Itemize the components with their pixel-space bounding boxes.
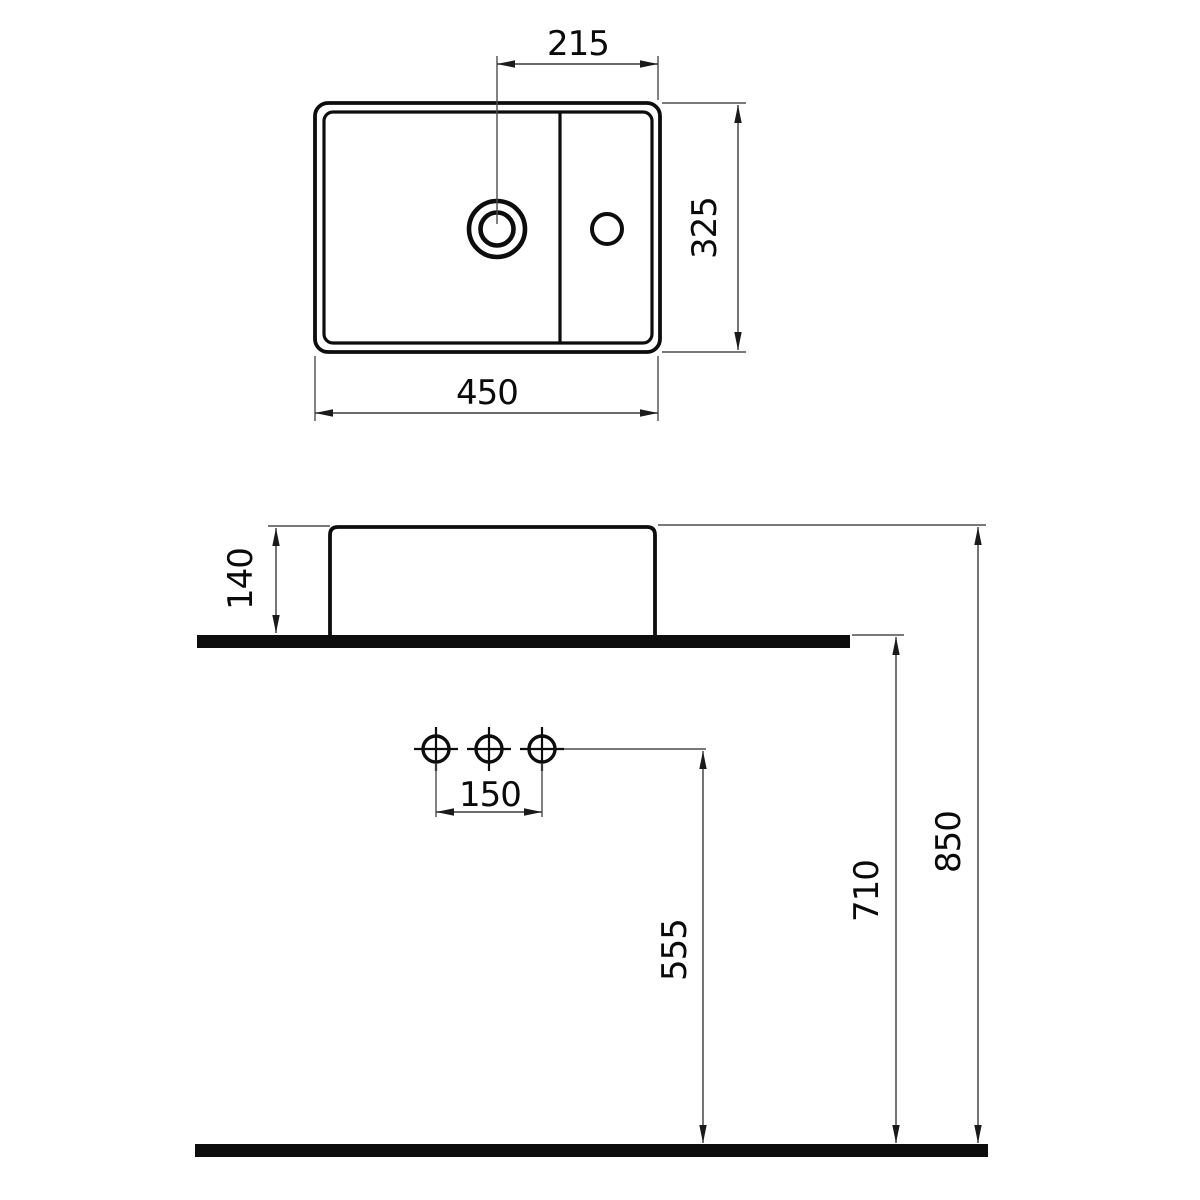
floor-bar xyxy=(195,1144,988,1157)
side-view: 140 150 xyxy=(195,525,988,1157)
dim-hole-spacing: 150 xyxy=(436,763,542,817)
mounting-hole-icon xyxy=(467,727,511,771)
dimension-label: 150 xyxy=(459,775,521,815)
dim-counter-height: 710 xyxy=(847,635,904,1143)
dim-width: 450 xyxy=(315,356,658,421)
tap-hole-icon xyxy=(592,214,622,244)
countertop-bar xyxy=(197,635,850,648)
basin-inner-rim xyxy=(324,112,652,343)
sink-profile xyxy=(330,527,655,637)
technical-drawing-canvas: 215 325 450 140 xyxy=(0,0,1200,1200)
dimension-label: 850 xyxy=(929,811,969,873)
dim-rim-height: 850 xyxy=(658,525,986,1143)
dim-basin-height: 140 xyxy=(221,526,330,633)
dim-outlet-height: 555 xyxy=(655,751,703,1143)
dimension-label: 140 xyxy=(221,548,261,610)
dimension-label: 450 xyxy=(456,373,518,413)
dim-depth: 325 xyxy=(662,103,746,352)
dimension-label: 555 xyxy=(655,919,695,981)
dimension-label: 215 xyxy=(547,24,609,64)
dim-tap-hole-offset: 215 xyxy=(497,24,658,224)
top-view: 215 325 450 xyxy=(315,24,746,421)
dimension-label: 325 xyxy=(685,197,725,259)
dimension-label: 710 xyxy=(847,860,887,922)
sink-outline-top xyxy=(315,103,660,352)
